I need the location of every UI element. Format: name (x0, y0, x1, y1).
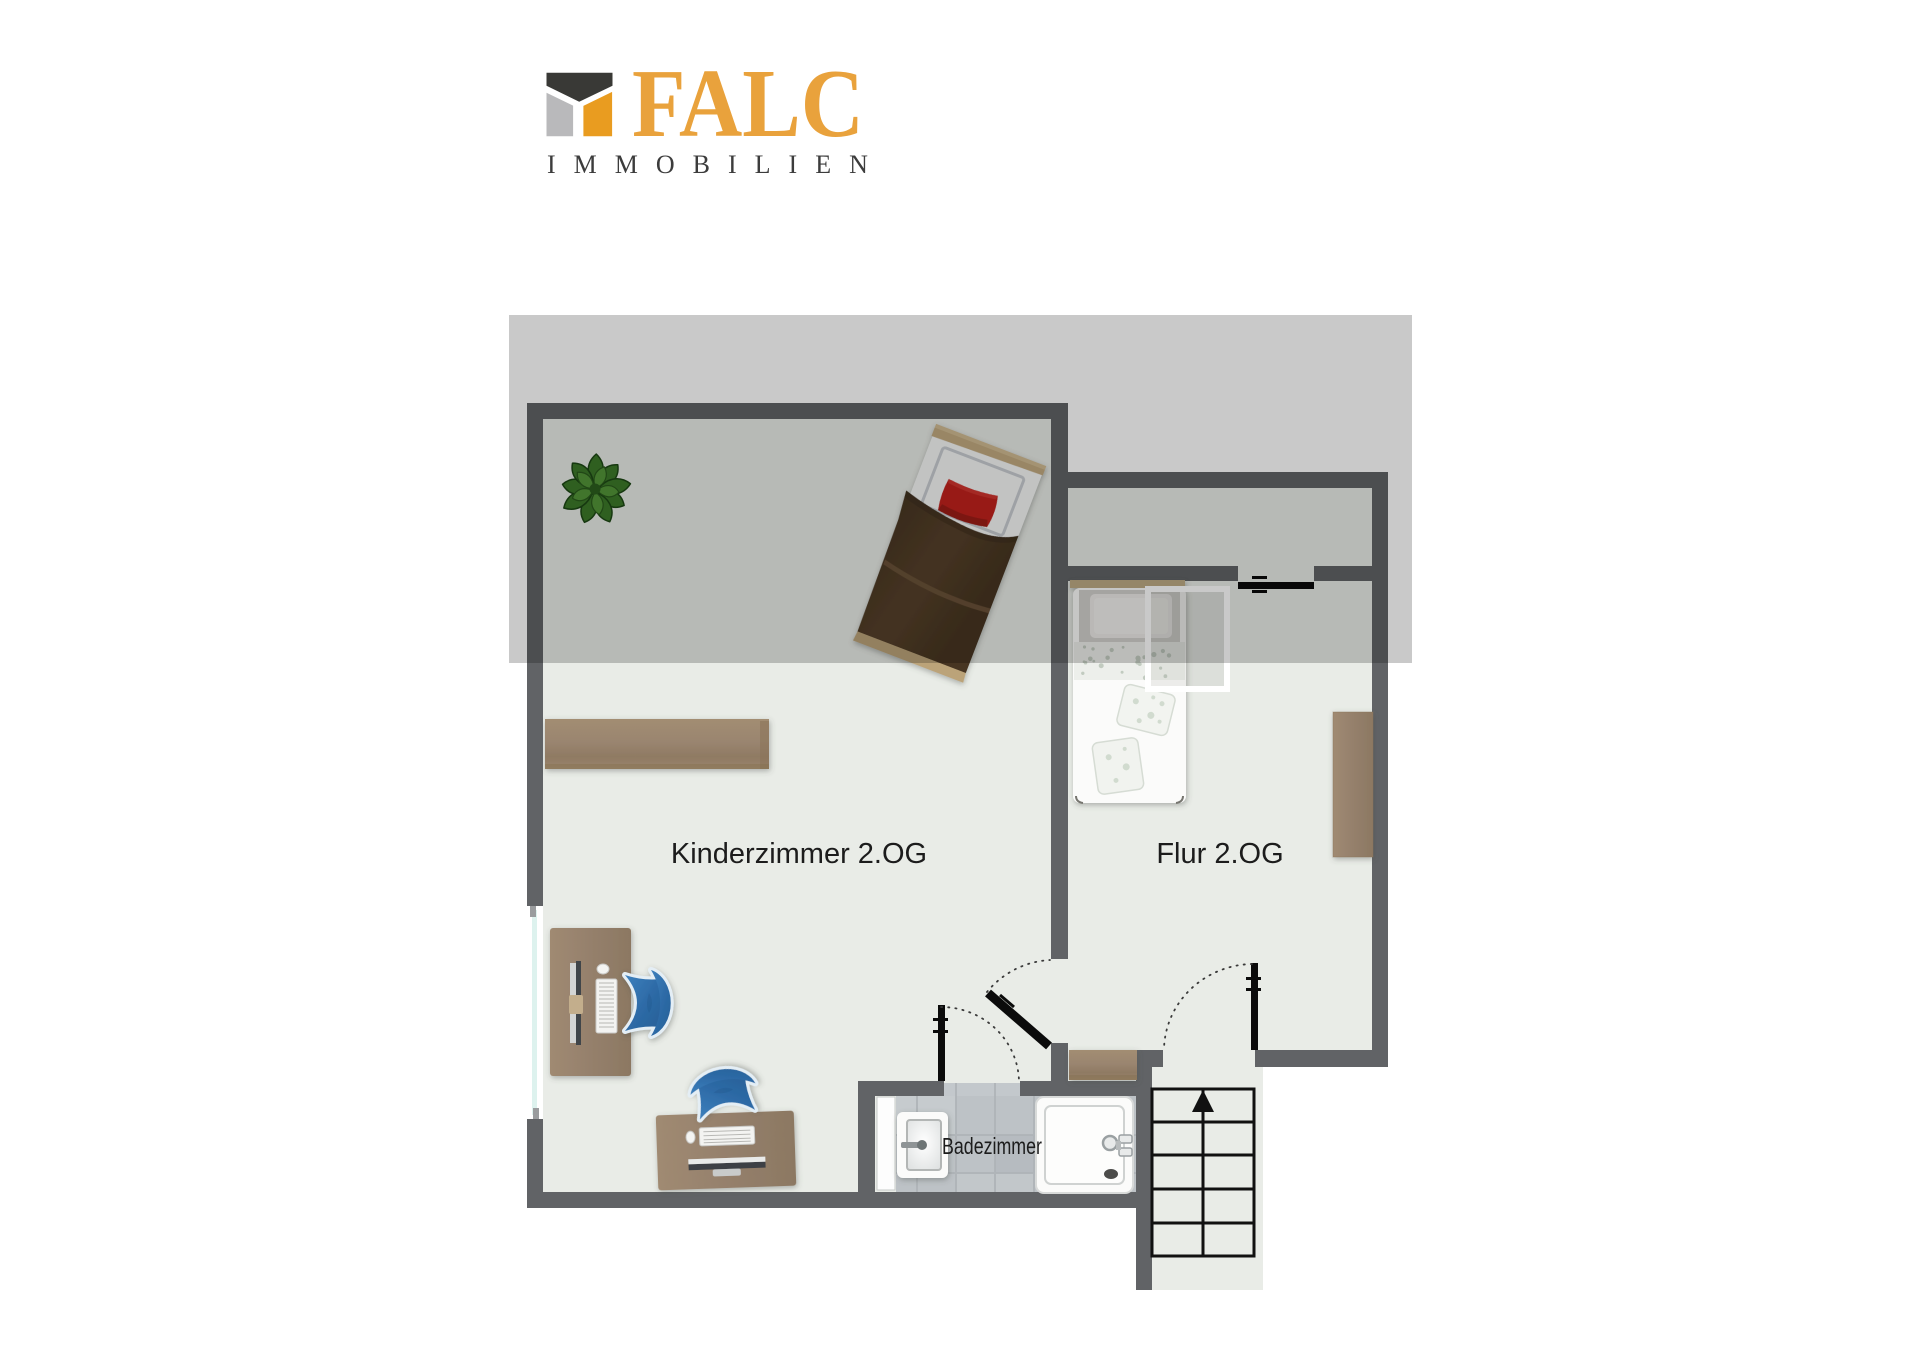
svg-text:IMMOBILIEN: IMMOBILIEN (547, 150, 886, 179)
svg-text:Kinderzimmer 2.OG: Kinderzimmer 2.OG (671, 838, 927, 870)
svg-text:FALC: FALC (632, 50, 864, 157)
svg-text:Badezimmer: Badezimmer (942, 1133, 1042, 1159)
svg-text:Flur 2.OG: Flur 2.OG (1156, 838, 1283, 870)
